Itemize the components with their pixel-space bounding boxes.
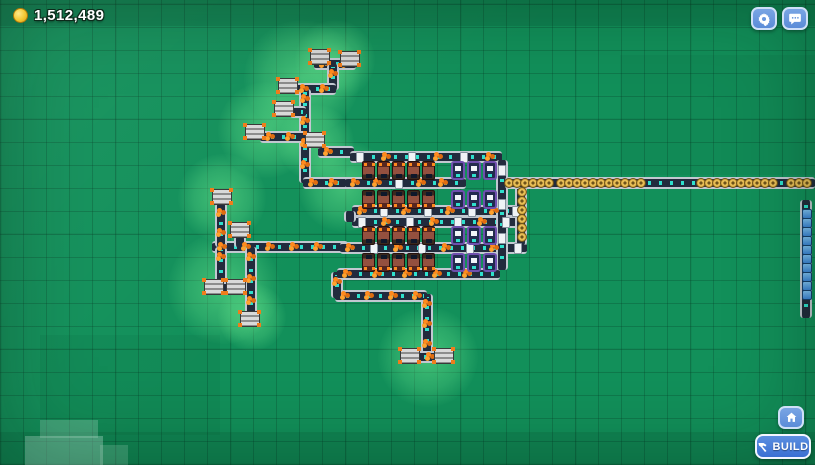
workshop-window [487, 166, 493, 171]
belt-item-crate [498, 165, 506, 176]
build-button-label: BUILD [772, 441, 808, 453]
furnace-building[interactable] [362, 161, 375, 180]
furnace-building[interactable] [407, 253, 420, 272]
belt-item-blue [802, 290, 812, 300]
furnace-building[interactable] [362, 253, 375, 272]
extractor-building[interactable] [226, 279, 246, 295]
workshop-port [456, 239, 460, 242]
workshop-window [471, 231, 477, 236]
belt-dashes [293, 110, 303, 114]
furnace-slot [396, 174, 402, 178]
furnace-building[interactable] [407, 190, 420, 209]
extractor-building[interactable] [400, 348, 420, 364]
social-button[interactable] [782, 7, 808, 30]
belt-item-ore [426, 352, 431, 357]
belt-item-ore [247, 252, 252, 257]
belt-item-ore [314, 242, 319, 247]
belt-item-ore [478, 217, 483, 222]
belt-item-ore [324, 147, 329, 152]
belt-item-crate [498, 199, 506, 210]
hammer-icon [757, 441, 769, 453]
extractor-building[interactable] [310, 49, 330, 65]
belt-item-ore [343, 269, 348, 274]
extractor-building[interactable] [278, 78, 298, 94]
terrain-patch [100, 445, 128, 465]
belt-item-ore [266, 242, 271, 247]
belt-item-gear [544, 178, 554, 188]
workshop-building[interactable] [451, 190, 465, 209]
furnace-slot [381, 192, 387, 196]
belt-dashes [353, 155, 499, 159]
belt-dashes [500, 163, 504, 267]
furnace-building[interactable] [422, 190, 435, 209]
home-icon [785, 411, 798, 424]
furnace-slot [411, 239, 417, 243]
belt-item-ore [300, 84, 305, 89]
coin-icon [13, 8, 28, 23]
furnace-slot [396, 255, 402, 259]
furnace-sparks [394, 267, 397, 270]
belt-item-ore [247, 274, 252, 279]
furnace-building[interactable] [377, 190, 390, 209]
furnace-sparks [364, 228, 367, 231]
workshop-port [488, 203, 492, 206]
furnace-slot [366, 192, 372, 196]
extractor-building[interactable] [340, 51, 360, 67]
extractor-building[interactable] [434, 348, 454, 364]
workshop-window [471, 195, 477, 200]
belt-item-ore [423, 299, 428, 304]
workshop-port [488, 174, 492, 177]
belt-item-ore [333, 277, 338, 282]
workshop-building[interactable] [451, 226, 465, 245]
extractor-feet [228, 221, 232, 225]
furnace-sparks [394, 228, 397, 231]
furnace-sparks [409, 267, 412, 270]
furnace-slot [426, 239, 432, 243]
belt-dashes [338, 294, 424, 298]
furnace-slot [426, 174, 432, 178]
furnace-building[interactable] [377, 253, 390, 272]
belt-item-ore [434, 152, 439, 157]
belt-item-ore [442, 243, 447, 248]
workshop-port [488, 266, 492, 269]
furnace-slot [411, 192, 417, 196]
furnace-sparks [379, 228, 382, 231]
workshop-window [487, 195, 493, 200]
furnace-building[interactable] [422, 253, 435, 272]
extractor-feet [210, 188, 214, 192]
home-button[interactable] [778, 406, 804, 429]
extractor-feet [303, 131, 307, 135]
belt-item-ore [301, 116, 306, 121]
belt-item-ore [301, 94, 306, 99]
belt-item-ore [329, 178, 334, 183]
belt-item-gear [517, 232, 527, 242]
furnace-slot [366, 255, 372, 259]
belt-item-ore [290, 242, 295, 247]
extractor-feet [238, 310, 242, 314]
belt-item-ore [423, 319, 428, 324]
belt-item-ore [320, 84, 325, 89]
money-value: 1,512,489 [34, 7, 104, 24]
furnace-building[interactable] [392, 226, 405, 245]
furnace-sparks [409, 204, 412, 207]
workshop-port [456, 266, 460, 269]
extractor-building[interactable] [274, 101, 294, 117]
belt-item-ore [247, 296, 252, 301]
belt-item-ore [423, 339, 428, 344]
workshop-port [472, 203, 476, 206]
furnace-slot [396, 192, 402, 196]
furnace-sparks [394, 204, 397, 207]
furnace-slot [366, 239, 372, 243]
furnace-sparks [409, 163, 412, 166]
top-right-buttons [751, 7, 808, 30]
furnace-building[interactable] [392, 253, 405, 272]
belt-item-ore [341, 291, 346, 296]
build-button[interactable]: BUILD [755, 434, 811, 459]
workshop-window [487, 258, 493, 263]
workshop-window [487, 231, 493, 236]
settings-button[interactable] [751, 7, 777, 30]
furnace-sparks [379, 267, 382, 270]
furnace-building[interactable] [422, 226, 435, 245]
belt-item-ore [266, 132, 271, 137]
belt-item-ore [329, 69, 334, 74]
belt-item-ore [309, 178, 314, 183]
workshop-building[interactable] [483, 161, 497, 180]
belt-item-ore [430, 217, 435, 222]
furnace-sparks [424, 228, 427, 231]
furnace-sparks [364, 267, 367, 270]
furnace-building[interactable] [362, 190, 375, 209]
workshop-port [456, 203, 460, 206]
furnace-building[interactable] [407, 226, 420, 245]
furnace-sparks [424, 267, 427, 270]
belt-item-ore [413, 291, 418, 296]
workshop-building[interactable] [467, 226, 481, 245]
workshop-building[interactable] [451, 161, 465, 180]
workshop-building[interactable] [451, 253, 465, 272]
furnace-slot [396, 239, 402, 243]
game-map[interactable] [0, 0, 815, 465]
extractor-feet [202, 278, 206, 282]
workshop-port [456, 174, 460, 177]
belt-item-ore [486, 152, 491, 157]
belt-item-ore [439, 178, 444, 183]
workshop-window [455, 195, 461, 200]
workshop-window [455, 231, 461, 236]
extractor-feet [308, 48, 312, 52]
furnace-sparks [364, 163, 367, 166]
belt-item-ore [382, 217, 387, 222]
terrain-patch [0, 0, 815, 26]
workshop-building[interactable] [467, 253, 481, 272]
belt-item-crate [502, 217, 510, 228]
workshop-building[interactable] [467, 190, 481, 209]
furnace-slot [426, 192, 432, 196]
conveyor-belt [344, 211, 356, 222]
conveyor-belt [212, 241, 348, 253]
belt-item-ore [286, 132, 291, 137]
furnace-building[interactable] [377, 161, 390, 180]
extractor-building[interactable] [204, 279, 224, 295]
belt-item-gear [802, 178, 812, 188]
workshop-port [488, 239, 492, 242]
extractor-feet [338, 50, 342, 54]
extractor-feet [243, 123, 247, 127]
belt-item-ore [217, 252, 222, 257]
belt-dashes [340, 272, 497, 276]
extractor-building[interactable] [305, 132, 325, 148]
belt-item-ore [346, 243, 351, 248]
terrain-patch [25, 436, 103, 465]
workshop-building[interactable] [483, 190, 497, 209]
furnace-sparks [394, 163, 397, 166]
belt-item-ore [218, 242, 223, 247]
furnace-slot [411, 174, 417, 178]
workshop-building[interactable] [483, 253, 497, 272]
furnace-slot [381, 239, 387, 243]
extractor-feet [398, 347, 402, 351]
belt-dashes [348, 214, 352, 219]
workshop-building[interactable] [467, 161, 481, 180]
extractor-building[interactable] [245, 124, 265, 140]
belt-dashes [348, 181, 463, 185]
belt-item-ore [365, 291, 370, 296]
extractor-building[interactable] [230, 222, 250, 238]
extractor-building[interactable] [212, 189, 232, 205]
belt-item-ore [217, 208, 222, 213]
furnace-slot [381, 174, 387, 178]
furnace-sparks [424, 163, 427, 166]
furnace-building[interactable] [377, 226, 390, 245]
furnace-sparks [424, 204, 427, 207]
furnace-building[interactable] [422, 161, 435, 180]
furnace-slot [426, 255, 432, 259]
workshop-port [472, 266, 476, 269]
belt-item-ore [351, 178, 356, 183]
furnace-slot [366, 174, 372, 178]
belt-item-ore [217, 228, 222, 233]
gear-icon [757, 12, 771, 26]
workshop-port [472, 239, 476, 242]
belt-item-gear [768, 178, 778, 188]
extractor-feet [276, 77, 280, 81]
game-screen: 1,512,489 BUILD [0, 0, 815, 465]
belt-item-gear [636, 178, 646, 188]
extractor-feet [432, 347, 436, 351]
belt-item-ore [389, 291, 394, 296]
belt-item-crate [514, 243, 522, 254]
chat-bubble-icon [788, 12, 802, 26]
belt-item-ore [242, 242, 247, 247]
belt-item-crate [498, 233, 506, 244]
belt-item-ore [301, 160, 306, 165]
workshop-window [471, 166, 477, 171]
furnace-sparks [379, 204, 382, 207]
extractor-building[interactable] [240, 311, 260, 327]
extractor-feet [224, 278, 228, 282]
workshop-window [455, 258, 461, 263]
furnace-building[interactable] [392, 161, 405, 180]
furnace-building[interactable] [407, 161, 420, 180]
workshop-window [471, 258, 477, 263]
workshop-building[interactable] [483, 226, 497, 245]
workshop-port [472, 174, 476, 177]
workshop-window [455, 166, 461, 171]
furnace-sparks [379, 163, 382, 166]
furnace-sparks [364, 204, 367, 207]
furnace-building[interactable] [362, 226, 375, 245]
conveyor-belt [245, 247, 257, 316]
terrain-patch [620, 55, 815, 175]
furnace-slot [411, 255, 417, 259]
money-counter: 1,512,489 [13, 7, 104, 24]
furnace-slot [381, 255, 387, 259]
extractor-feet [272, 100, 276, 104]
belt-dashes [249, 250, 253, 313]
belt-item-ore [382, 152, 387, 157]
furnace-building[interactable] [392, 190, 405, 209]
furnace-sparks [409, 228, 412, 231]
